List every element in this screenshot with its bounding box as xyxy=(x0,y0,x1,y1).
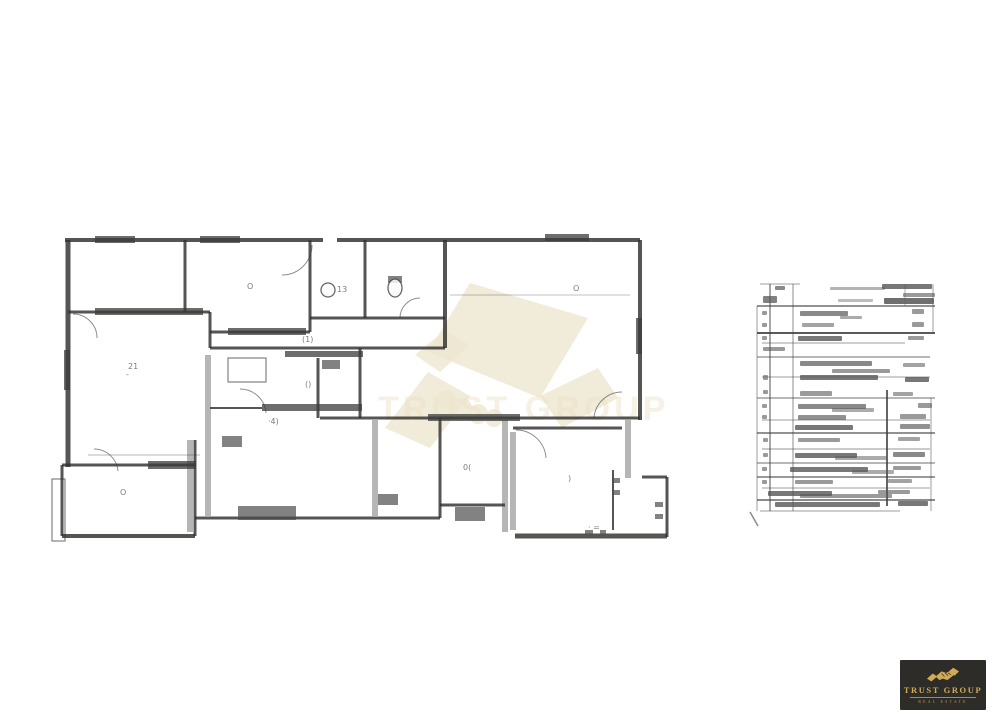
logo-divider xyxy=(910,697,976,698)
handshake-icon xyxy=(922,667,964,683)
scanned-floorplan-page: TRUST GROUP 21-O13O0()O()·4)· =(1) TRUST… xyxy=(0,0,992,720)
svg-text:·4): ·4) xyxy=(268,417,279,426)
svg-text:13: 13 xyxy=(337,285,347,294)
svg-text:· =: · = xyxy=(588,523,600,532)
legend-table xyxy=(750,284,935,526)
svg-text:): ) xyxy=(568,474,571,483)
floor-plan-drawing: TRUST GROUP 21-O13O0()O()·4)· =(1) xyxy=(0,0,992,720)
svg-text:O: O xyxy=(247,282,253,291)
svg-text:(1): (1) xyxy=(302,335,313,344)
svg-text:0(: 0( xyxy=(463,463,471,472)
trust-group-logo: TRUST GROUP REAL ESTATE xyxy=(900,660,986,710)
logo-subtitle: REAL ESTATE xyxy=(918,699,968,704)
svg-text:O: O xyxy=(120,488,126,497)
svg-text:21: 21 xyxy=(128,362,138,371)
svg-text:(): () xyxy=(305,380,311,389)
svg-text:O: O xyxy=(573,284,579,293)
logo-title: TRUST GROUP xyxy=(904,685,983,695)
svg-text:-: - xyxy=(126,370,129,379)
